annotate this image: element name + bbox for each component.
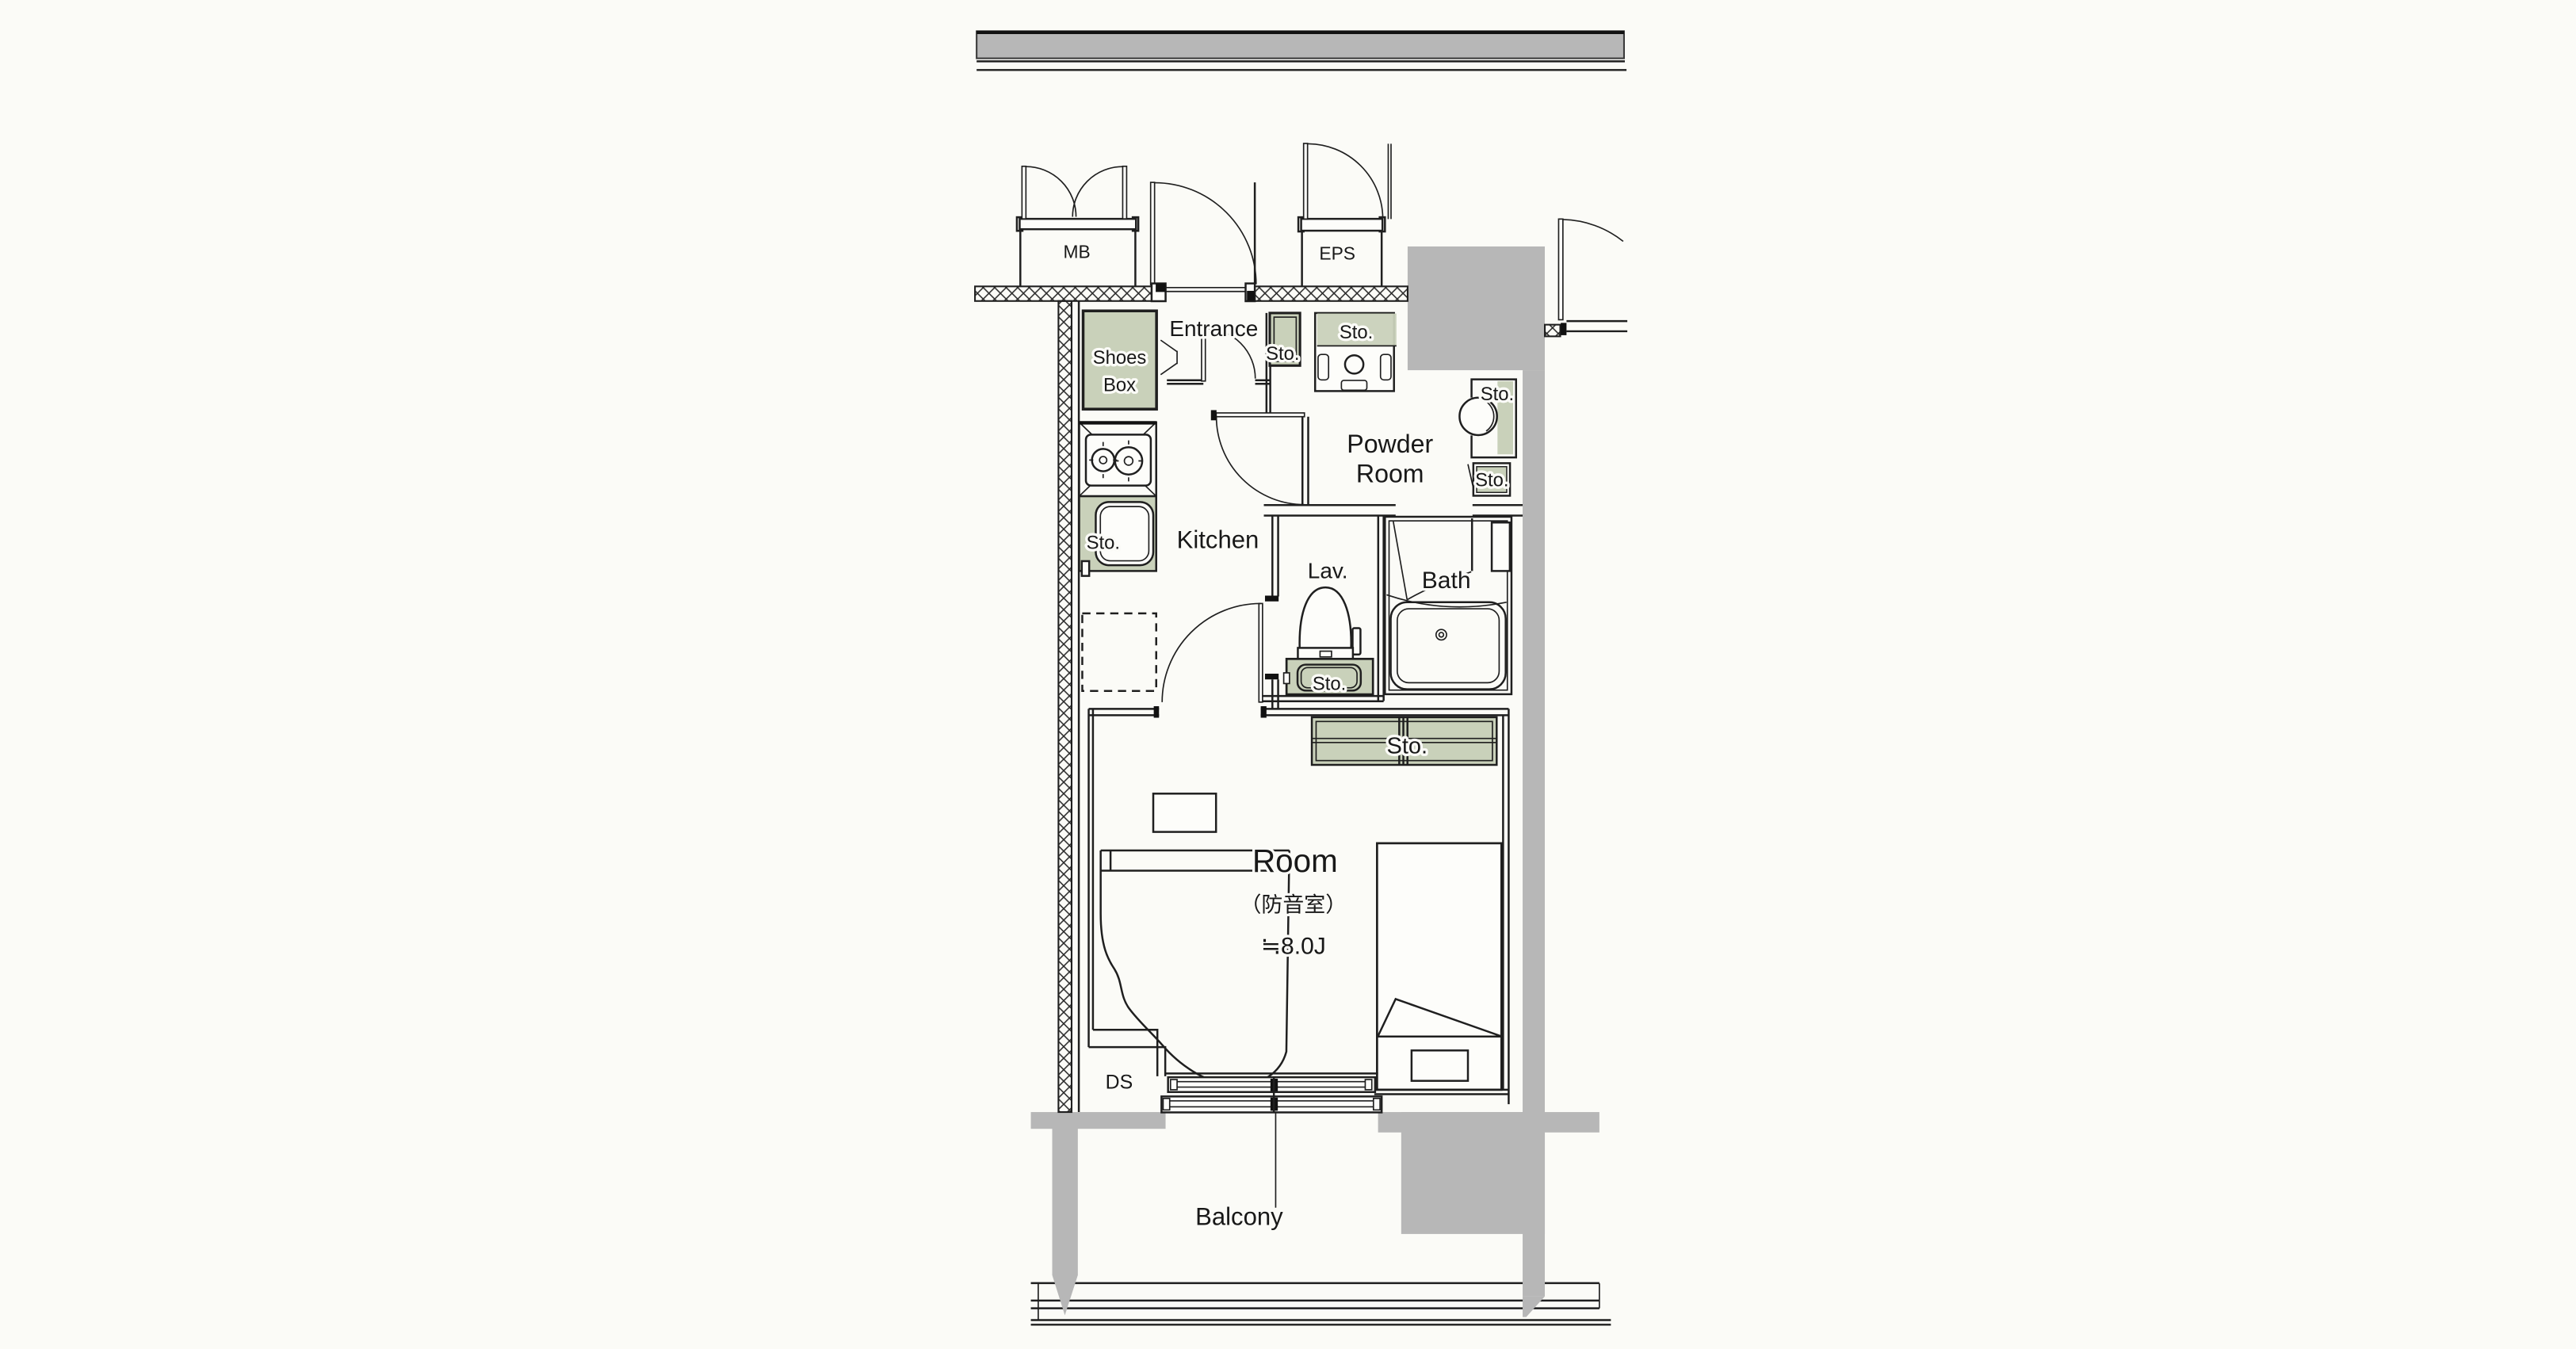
label-shoes-box-2: Box (1103, 374, 1136, 396)
label-room-note: （防音室） (1240, 893, 1347, 917)
label-mb: MB (1064, 241, 1091, 262)
pillow (1412, 1050, 1468, 1080)
label-eps: EPS (1319, 243, 1355, 264)
label-room-size: ≒8.0J (1261, 933, 1326, 959)
label-kitchen: Kitchen (1177, 525, 1259, 553)
label-closet-sto: Sto. (1386, 734, 1428, 759)
bed (1377, 843, 1501, 1090)
floor-plan-svg: MB EPS Entrance Sto. Shoes Box Sto. Sto.… (0, 0, 2576, 1349)
label-room: Room (1252, 843, 1338, 879)
label-ds: DS (1106, 1071, 1133, 1093)
floor-plan: MB EPS Entrance Sto. Shoes Box Sto. Sto.… (0, 0, 2576, 1349)
label-kitchen-sto: Sto. (1087, 532, 1120, 553)
label-washer-sto: Sto. (1481, 384, 1514, 405)
label-bath: Bath (1422, 567, 1471, 594)
label-balcony: Balcony (1195, 1202, 1283, 1230)
label-lav-sto: Sto. (1313, 674, 1346, 695)
label-lav: Lav. (1308, 559, 1348, 583)
desk (1153, 793, 1216, 831)
label-powder-room-1: Powder (1347, 430, 1433, 458)
label-entrance-sto: Sto. (1266, 343, 1299, 365)
counter-end (1082, 561, 1089, 576)
label-vanity-sto: Sto. (1340, 322, 1373, 343)
label-shoes-box-1: Shoes (1093, 347, 1147, 369)
label-powder-room-2: Room (1356, 459, 1424, 487)
label-entrance: Entrance (1169, 316, 1258, 341)
label-powder-sto: Sto. (1475, 470, 1508, 491)
